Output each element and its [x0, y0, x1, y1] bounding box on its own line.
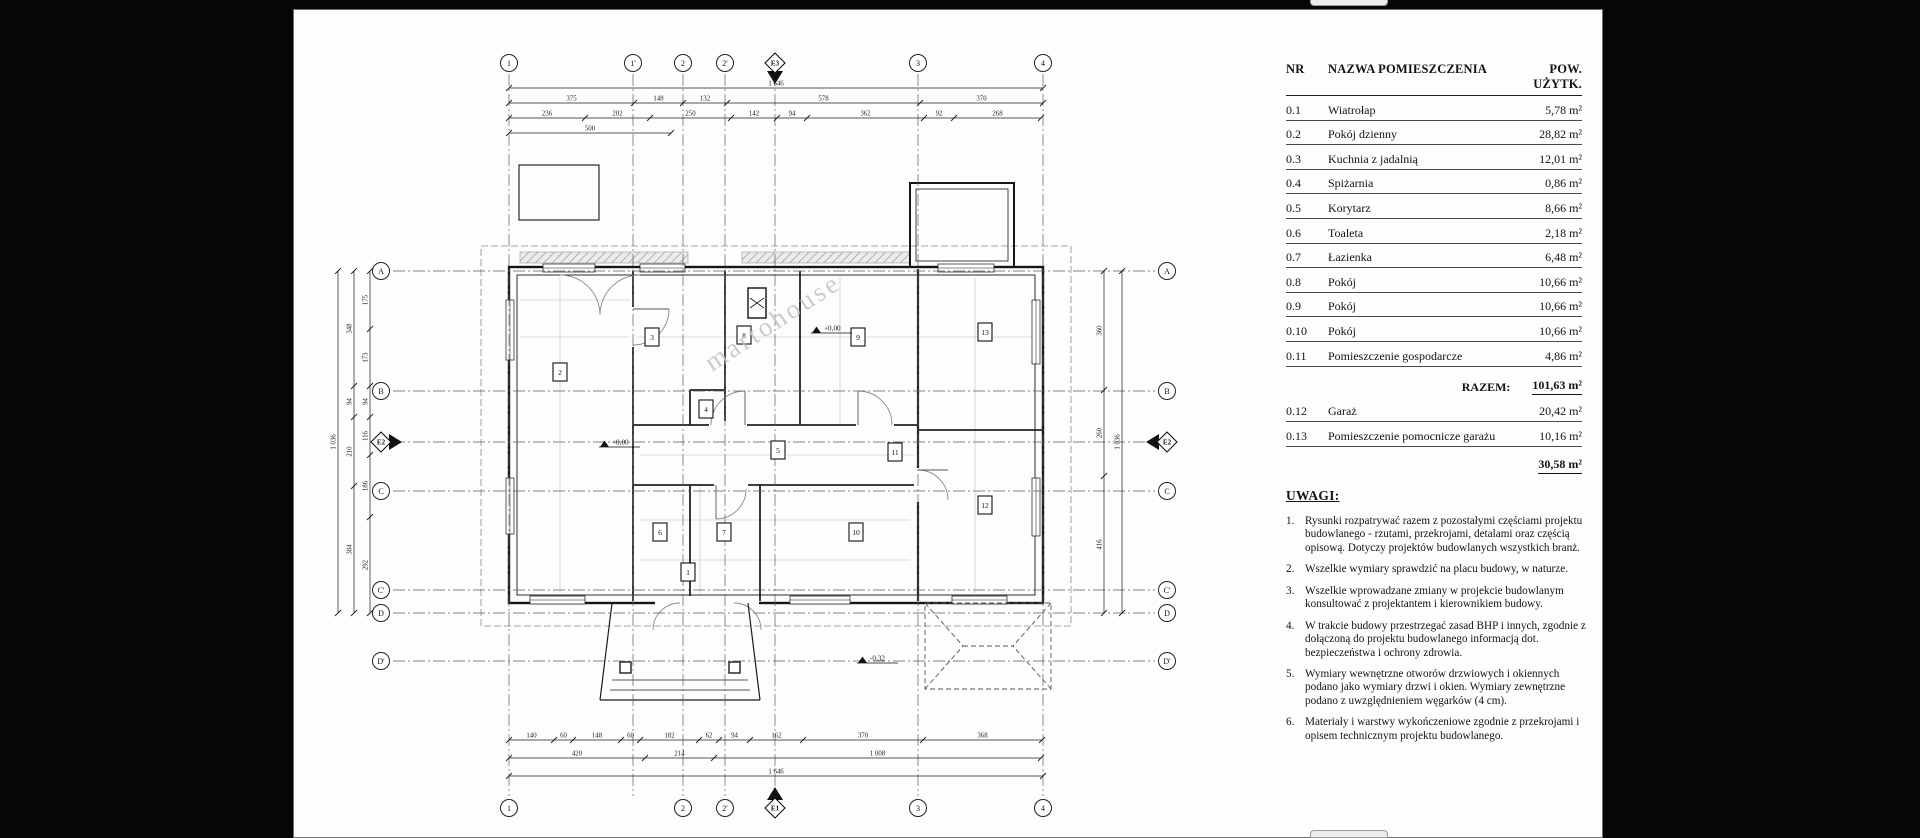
svg-text:142: 142	[749, 111, 760, 118]
svg-text:1 036: 1 036	[1115, 434, 1122, 450]
svg-text:1': 1'	[630, 59, 636, 68]
svg-text:500: 500	[585, 126, 596, 133]
grid-bubble: 4	[1035, 800, 1052, 817]
schedule-body: 0.1Wiatrołap5,78 m²0.2Pokój dzienny28,82…	[1286, 96, 1582, 474]
svg-text:1: 1	[507, 59, 511, 68]
svg-text:94: 94	[347, 398, 354, 405]
grid-bubble: D'	[1159, 653, 1176, 670]
svg-text:5: 5	[776, 446, 780, 455]
svg-text:370: 370	[858, 733, 869, 740]
svg-text:214: 214	[674, 751, 685, 758]
svg-text:202: 202	[612, 111, 623, 118]
razem-row: RAZEM:101,63 m²	[1286, 368, 1582, 395]
room-number-box: 12	[978, 496, 992, 514]
svg-text:260: 260	[1097, 427, 1104, 438]
svg-text:2: 2	[558, 368, 562, 377]
dimension-chain: 1 646	[506, 769, 1046, 780]
svg-text:7: 7	[722, 528, 726, 537]
section-marker: E2	[371, 432, 402, 452]
note-item: 6.Materiały i warstwy wykończeniowe zgod…	[1286, 716, 1589, 743]
svg-text:268: 268	[992, 111, 1003, 118]
svg-text:148: 148	[592, 733, 603, 740]
svg-text:148: 148	[653, 96, 664, 103]
svg-text:1 646: 1 646	[768, 769, 784, 776]
svg-text:2': 2'	[722, 59, 728, 68]
svg-text:370: 370	[976, 96, 987, 103]
grid-lines	[393, 74, 1155, 796]
grid-bubble: 1	[501, 800, 518, 817]
svg-text:6: 6	[658, 528, 662, 537]
entrance-porch	[600, 603, 760, 700]
watermark: martohouse	[699, 267, 846, 377]
svg-text:3: 3	[916, 59, 920, 68]
grid-bubble: D'	[373, 653, 390, 670]
svg-text:11: 11	[891, 448, 899, 457]
schedule-row: 0.13Pomieszczenie pomocnicze garażu10,16…	[1286, 422, 1582, 447]
svg-text:1 036: 1 036	[331, 434, 338, 450]
svg-text:D: D	[378, 609, 384, 618]
room-number-box: 9	[851, 328, 865, 346]
svg-text:1 008: 1 008	[870, 751, 886, 758]
document-page: 1 64637514813257837023620225014294362922…	[294, 10, 1602, 837]
svg-text:E2: E2	[377, 439, 386, 447]
header-nr: NR	[1286, 62, 1328, 92]
svg-text:C': C'	[1164, 586, 1171, 595]
grid-bubble: C	[373, 483, 390, 500]
svg-text:C: C	[1164, 487, 1169, 496]
svg-text:132: 132	[700, 96, 711, 103]
schedule-row: 0.8Pokój10,66 m²	[1286, 268, 1582, 293]
svg-text:12: 12	[981, 501, 989, 510]
svg-text:3: 3	[916, 804, 920, 813]
svg-text:420: 420	[572, 751, 583, 758]
svg-text:+0,00: +0,00	[612, 439, 629, 447]
svg-text:360: 360	[1097, 325, 1104, 336]
grid-bubble: A	[373, 263, 390, 280]
room-number-box: 1	[681, 563, 695, 581]
grid-bubble: A	[1159, 263, 1176, 280]
svg-text:173: 173	[363, 352, 370, 363]
grid-bubble: 4	[1035, 55, 1052, 72]
grid-bubble: 2	[675, 800, 692, 817]
svg-text:250: 250	[685, 111, 696, 118]
grid-bubble: 2'	[717, 800, 734, 817]
svg-text:92: 92	[936, 111, 943, 118]
grid-bubble: 2'	[717, 55, 734, 72]
svg-text:2: 2	[681, 59, 685, 68]
note-item: 2.Wszelkie wymiary sprawdzić na placu bu…	[1286, 563, 1589, 576]
svg-text:E3: E3	[771, 60, 780, 68]
schedule-row: 0.11Pomieszczenie gospodarcze4,86 m²	[1286, 342, 1582, 367]
svg-text:1: 1	[686, 568, 690, 577]
svg-text:292: 292	[363, 559, 370, 570]
svg-text:140: 140	[526, 733, 537, 740]
grid-bubble: 1	[501, 55, 518, 72]
top-toolbar-fragment[interactable]	[1310, 0, 1388, 6]
section-marker: E2	[1146, 432, 1177, 452]
room-number-box: 13	[978, 323, 992, 341]
room-number-box: 4	[699, 400, 713, 418]
svg-text:162: 162	[771, 733, 782, 740]
schedule-header-row: NR NAZWA POMIESZCZENIA POW. UŻYTK.	[1286, 62, 1582, 96]
extra-total-row: 30,58 m²	[1286, 447, 1582, 474]
grid-bubble: D	[373, 605, 390, 622]
grid-bubble: C	[1159, 483, 1176, 500]
svg-text:175: 175	[363, 294, 370, 305]
schedule-row: 0.10Pokój10,66 m²	[1286, 317, 1582, 342]
grid-bubble: 2	[675, 55, 692, 72]
schedule-row: 0.6Toaleta2,18 m²	[1286, 219, 1582, 244]
room-number-box: 5	[771, 441, 785, 459]
schedule-row: 0.1Wiatrołap5,78 m²	[1286, 96, 1582, 121]
svg-text:D: D	[1164, 609, 1170, 618]
dimension-chain: 375148132578370	[506, 96, 1046, 107]
grid-bubble: 3	[910, 800, 927, 817]
level-markers: +0,00+0,00-0,32	[599, 325, 898, 664]
schedule-row: 0.12Garaż20,42 m²	[1286, 398, 1582, 423]
svg-text:D': D'	[1163, 657, 1171, 666]
notes-section: UWAGI: 1.Rysunki rozpatrywać razem z poz…	[1286, 488, 1589, 751]
svg-text:D': D'	[377, 657, 385, 666]
svg-text:182: 182	[664, 733, 675, 740]
room-number-box: 7	[717, 523, 731, 541]
svg-text:416: 416	[1097, 539, 1104, 550]
level-marker: -0,32	[857, 655, 898, 664]
grid-bubble: 1'	[625, 55, 642, 72]
header-name: NAZWA POMIESZCZENIA	[1328, 62, 1498, 92]
grid-bubbles: 11'22'34122'34ABCC'DD'ABCC'DD'	[373, 55, 1176, 817]
svg-text:348: 348	[347, 323, 354, 334]
svg-text:62: 62	[706, 733, 713, 740]
schedule-row: 0.4Spiżarnia0,86 m²	[1286, 170, 1582, 195]
notes-list: 1.Rysunki rozpatrywać razem z pozostałym…	[1286, 515, 1589, 743]
svg-text:A: A	[378, 267, 384, 276]
section-marker: E1	[765, 787, 785, 818]
svg-text:10: 10	[852, 528, 860, 537]
grid-bubble: D	[1159, 605, 1176, 622]
schedule-row: 0.7Łazienka6,48 m²	[1286, 244, 1582, 269]
room-schedule-table: NR NAZWA POMIESZCZENIA POW. UŻYTK. 0.1Wi…	[1286, 62, 1582, 474]
floor-plan-drawing	[481, 165, 1071, 700]
notes-heading: UWAGI:	[1286, 488, 1589, 504]
header-area: POW. UŻYTK.	[1498, 62, 1582, 92]
svg-text:362: 362	[860, 111, 871, 118]
svg-text:A: A	[1164, 267, 1170, 276]
svg-text:210: 210	[347, 446, 354, 457]
svg-text:4: 4	[1041, 59, 1045, 68]
svg-text:236: 236	[542, 111, 553, 118]
svg-text:2: 2	[681, 804, 685, 813]
room-number-box: 2	[553, 363, 567, 381]
svg-text:94: 94	[789, 111, 796, 118]
note-item: 3.Wszelkie wprowadzane zmiany w projekci…	[1286, 585, 1589, 612]
garage-roof	[925, 603, 1051, 689]
svg-text:3: 3	[650, 333, 654, 342]
dimension-chain: 1 036	[331, 268, 342, 616]
app-canvas: { "page": { "watermark": "martohouse" },…	[0, 0, 1920, 837]
schedule-row: 0.9Pokój10,66 m²	[1286, 293, 1582, 318]
eave-hatch-band	[520, 252, 688, 263]
dimension-chain: 34894210384	[347, 268, 358, 616]
svg-text:C: C	[378, 487, 383, 496]
svg-text:B: B	[378, 387, 383, 396]
room-number-markers: 12345678910111213	[553, 323, 992, 581]
svg-text:4: 4	[1041, 804, 1045, 813]
room-number-box: 11	[888, 443, 902, 461]
section-marker: E3	[765, 53, 785, 84]
svg-text:368: 368	[977, 733, 988, 740]
note-item: 4.W trakcie budowy przestrzegać zasad BH…	[1286, 620, 1589, 660]
eave-hatch-band	[742, 252, 910, 263]
svg-text:13: 13	[981, 328, 989, 337]
grid-bubble: B	[1159, 383, 1176, 400]
svg-text:578: 578	[818, 96, 829, 103]
svg-text:186: 186	[363, 480, 370, 491]
grid-bubble: C'	[373, 582, 390, 599]
svg-text:E2: E2	[1163, 439, 1172, 447]
schedule-row: 0.5Korytarz8,66 m²	[1286, 194, 1582, 219]
svg-text:60: 60	[627, 733, 634, 740]
svg-text:9: 9	[856, 333, 860, 342]
svg-text:-0,32: -0,32	[870, 655, 885, 663]
svg-text:C': C'	[378, 586, 385, 595]
svg-text:1: 1	[507, 804, 511, 813]
grid-bubble: C'	[1159, 582, 1176, 599]
svg-text:375: 375	[566, 96, 577, 103]
svg-text:+0,00: +0,00	[824, 325, 841, 333]
exterior-walls	[509, 165, 1043, 603]
svg-text:384: 384	[347, 544, 354, 555]
grid-bubble: B	[373, 383, 390, 400]
svg-text:116: 116	[363, 430, 370, 441]
grid-bubble: 3	[910, 55, 927, 72]
svg-text:E1: E1	[771, 805, 780, 813]
schedule-row: 0.2Pokój dzienny28,82 m²	[1286, 121, 1582, 146]
note-item: 1.Rysunki rozpatrywać razem z pozostałym…	[1286, 515, 1589, 555]
dimension-chain: 14060148601826294162370368	[506, 733, 1045, 744]
svg-text:94: 94	[363, 398, 370, 405]
room-number-box: 10	[849, 523, 863, 541]
svg-text:B: B	[1164, 387, 1169, 396]
interior-walls	[633, 269, 1043, 601]
schedule-row: 0.3Kuchnia z jadalnią12,01 m²	[1286, 145, 1582, 170]
dimension-chain: 500	[506, 126, 674, 137]
room-number-box: 6	[653, 523, 667, 541]
level-marker: +0,00	[811, 325, 852, 334]
svg-text:4: 4	[704, 405, 708, 414]
section-markers: E3E1E2E2	[371, 53, 1177, 818]
svg-text:94: 94	[731, 733, 738, 740]
svg-text:2': 2'	[722, 804, 728, 813]
note-item: 5.Wymiary wewnętrzne otworów drzwiowych …	[1286, 668, 1589, 708]
svg-text:60: 60	[560, 733, 567, 740]
room-number-box: 3	[645, 328, 659, 346]
